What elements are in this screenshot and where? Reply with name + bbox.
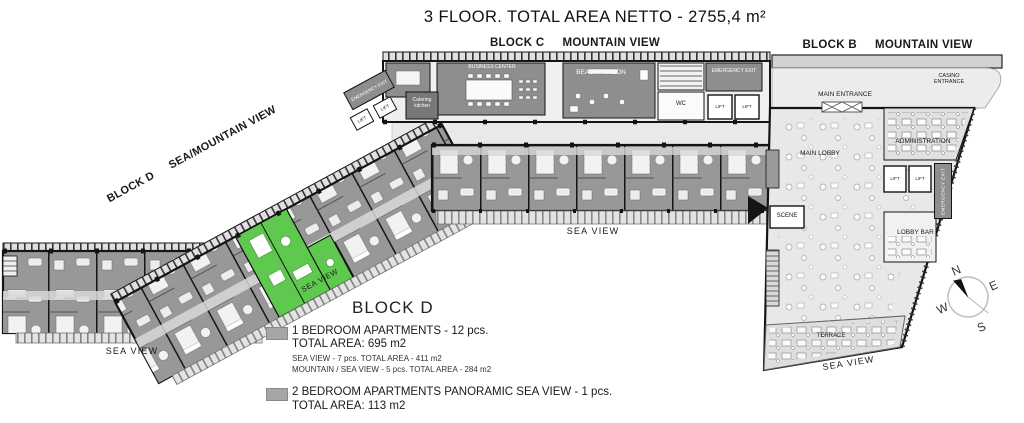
business-center-label: BUSINESS CENTER bbox=[452, 65, 532, 71]
main-entrance-label: MAIN ENTRANCE bbox=[810, 91, 880, 98]
legend-item2-total: TOTAL AREA: 113 m2 bbox=[292, 400, 405, 413]
lift-c2-label: LIFT bbox=[736, 104, 758, 109]
lift-b1-label: LIFT bbox=[885, 176, 905, 181]
casino-entrance-label: CASINO ENTRANCE bbox=[926, 73, 972, 86]
lift-c1-label: LIFT bbox=[709, 104, 731, 109]
block-c-building bbox=[383, 52, 770, 122]
block-c-name: BLOCK C bbox=[490, 37, 545, 50]
central-apartment-wing bbox=[432, 145, 772, 224]
legend-item1-total: TOTAL AREA: 695 m2 bbox=[292, 338, 406, 351]
lift-b2-label: LIFT bbox=[910, 176, 930, 181]
emergency-exit-b-box: EMERGENCY EXIT bbox=[934, 163, 952, 219]
legend-item1-label: 1 BEDROOM APARTMENTS - 12 pcs. bbox=[292, 325, 488, 338]
legend-swatch-2-bedroom bbox=[266, 388, 288, 401]
lift-junction-1-label: LIFT bbox=[357, 115, 368, 124]
compass-east-label: E bbox=[987, 278, 1000, 294]
catering-kitchen-label: Catering kitchen bbox=[407, 98, 437, 110]
block-b-view: MOUNTAIN VIEW bbox=[875, 39, 973, 52]
emergency-exit-b-label: EMERGENCY EXIT bbox=[940, 167, 945, 214]
block-b-name: BLOCK B bbox=[802, 39, 857, 52]
wc-label: WC bbox=[670, 101, 692, 108]
block-b-heading: BLOCK B MOUNTAIN VIEW bbox=[790, 39, 985, 52]
compass-north-label: N bbox=[949, 262, 963, 278]
beauty-salon-label: BEAUTY SALON bbox=[566, 69, 636, 76]
legend-heading: BLOCK D bbox=[352, 298, 434, 318]
lift-junction-2-label: LIFT bbox=[380, 103, 391, 112]
floor-plan-page: N E S W 3 FLOOR. TOTAL AREA NETTO - 2755… bbox=[0, 0, 1024, 423]
compass-needle bbox=[953, 277, 969, 300]
emergency-exit-c-label: EMERGENCY EXIT bbox=[708, 69, 760, 75]
compass-south-label: S bbox=[975, 319, 988, 335]
block-c-view: MOUNTAIN VIEW bbox=[562, 37, 660, 50]
terrace-label: TERRACE bbox=[806, 333, 856, 340]
block-c-heading: BLOCK C MOUNTAIN VIEW bbox=[460, 37, 690, 50]
legend-item1-detail-mountain: MOUNTAIN / SEA VIEW - 5 pcs. TOTAL AREA … bbox=[292, 365, 491, 375]
administration-label: ADMINISTRATION bbox=[892, 138, 954, 145]
legend-swatch-1-bedroom bbox=[266, 327, 288, 340]
lobby-bar-label: LOBBY BAR bbox=[888, 229, 943, 236]
compass-rose: N E S W bbox=[923, 251, 1014, 347]
main-lobby-label: MAIN LOBBY bbox=[790, 150, 850, 157]
sea-view-label-central: SEA VIEW bbox=[548, 226, 638, 236]
page-title: 3 FLOOR. TOTAL AREA NETTO - 2755,4 m² bbox=[260, 8, 930, 27]
scene-label: SCENE bbox=[771, 213, 803, 220]
sea-view-label-block-d-bottom: SEA VIEW bbox=[92, 346, 172, 356]
legend-item1-detail-sea: SEA VIEW - 7 pcs. TOTAL AREA - 411 m2 bbox=[292, 354, 442, 364]
legend-item2-label: 2 BEDROOM APARTMENTS PANORAMIC SEA VIEW … bbox=[292, 386, 612, 399]
